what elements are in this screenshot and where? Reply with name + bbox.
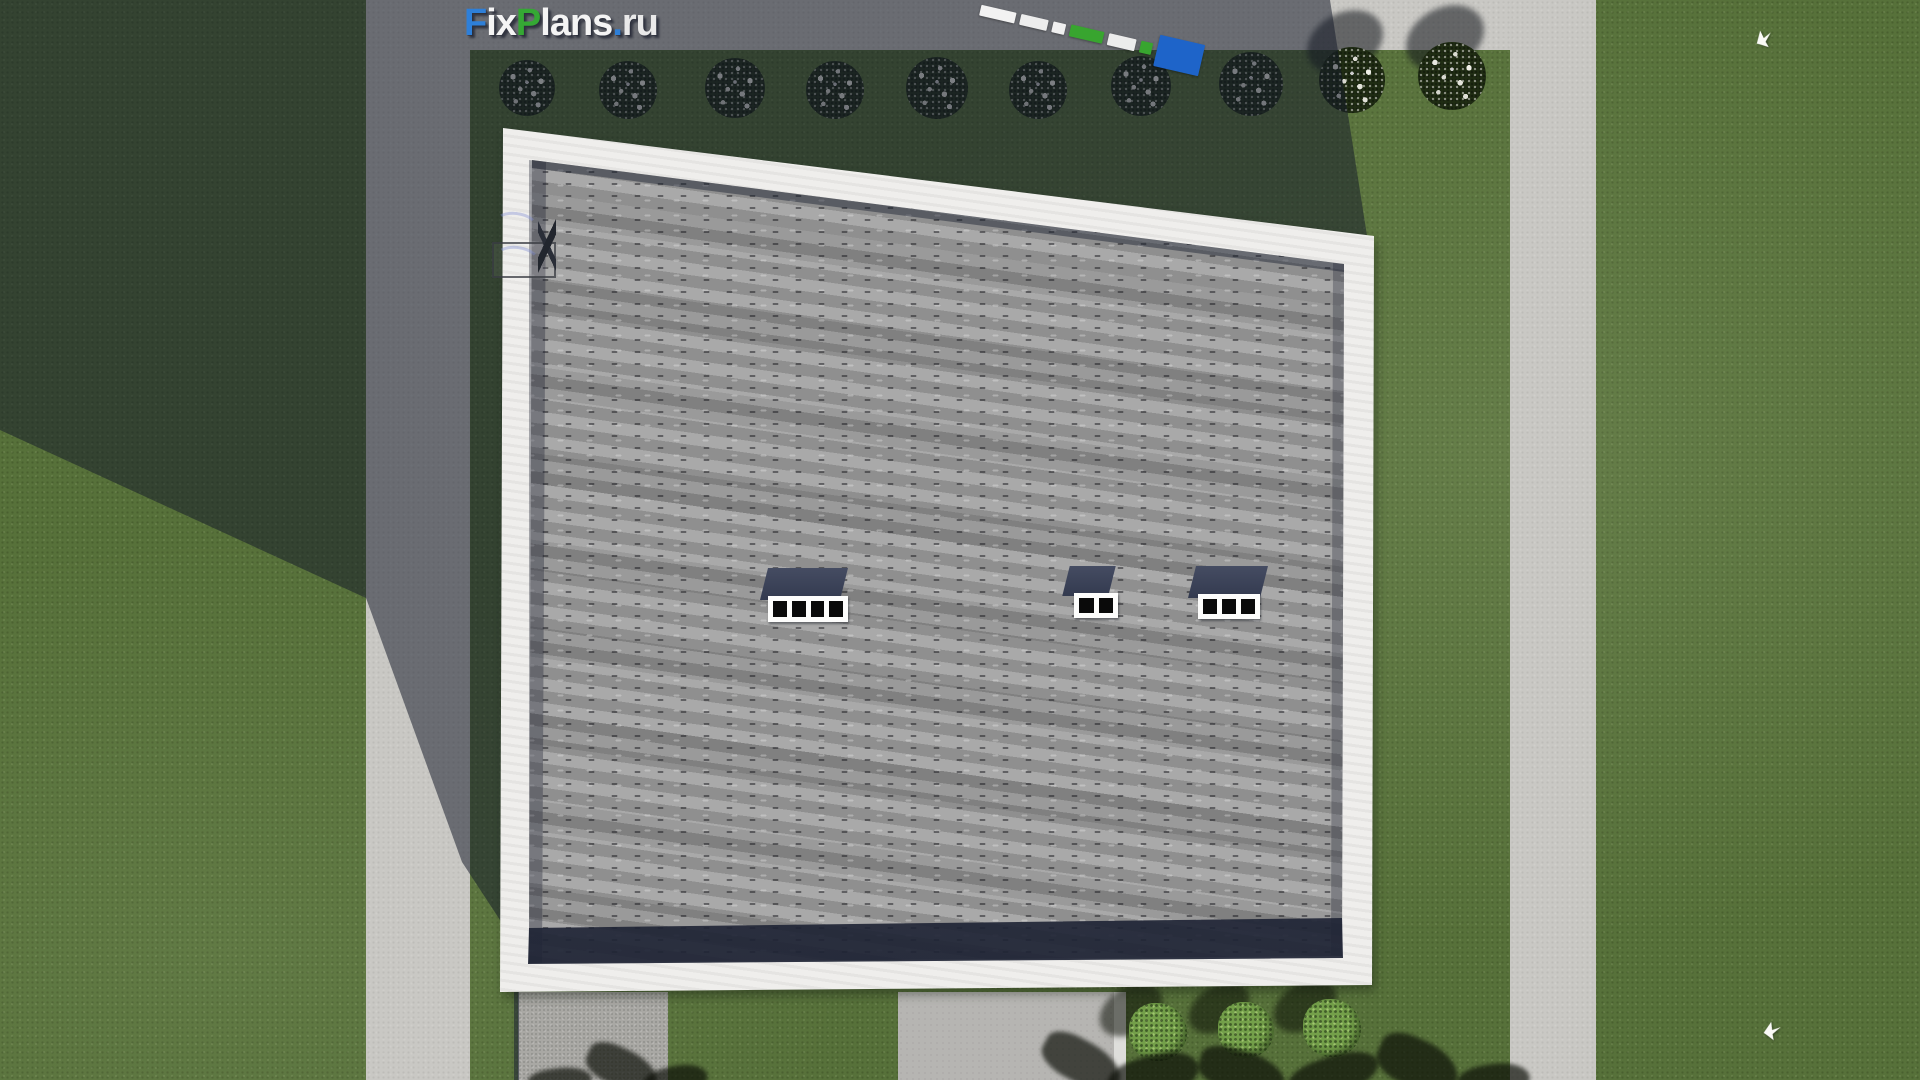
logo-letter: F: [464, 2, 486, 44]
fixplans-watermark: FixPlans.ru: [464, 2, 658, 45]
marker-dash: [1051, 21, 1066, 35]
house-roof: [488, 118, 1388, 998]
marker-dash: [1019, 13, 1049, 30]
logo-letter: ru: [622, 2, 658, 44]
marker-dash: [1107, 33, 1137, 51]
driveway-edge-shadow: [514, 992, 519, 1080]
marker-dash: [1069, 24, 1105, 43]
logo-letter: ix: [486, 2, 516, 44]
logo-letter: lans: [540, 2, 612, 44]
marker-dash: [979, 4, 1017, 23]
right-path: [1510, 0, 1596, 1080]
curb: [1114, 992, 1126, 1080]
driveway-left: [518, 992, 668, 1080]
marker-dash: [1139, 41, 1153, 55]
logo-letter: P: [516, 2, 540, 44]
logo-letter: .: [612, 2, 622, 44]
aerial-render-canvas: FixPlans.ru: [0, 0, 1920, 1080]
driveway-center: [898, 992, 1114, 1080]
roof-ladder-mark: [538, 216, 556, 276]
